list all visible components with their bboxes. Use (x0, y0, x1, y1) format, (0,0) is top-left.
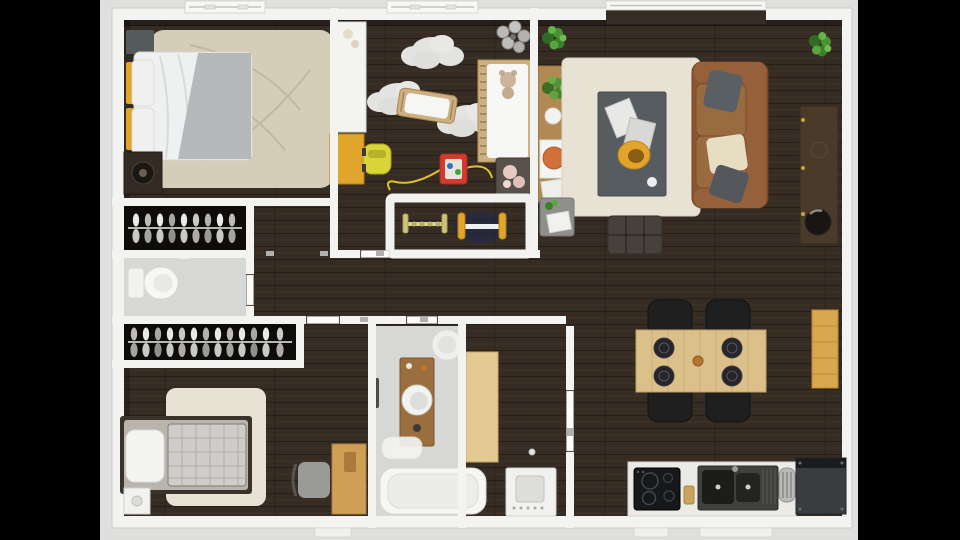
desk-items (344, 452, 356, 472)
wall-closet2-east (296, 316, 304, 368)
cooktop (634, 468, 680, 510)
window-nursery (387, 1, 478, 13)
wall-bench (812, 310, 838, 388)
sofa-backrest (744, 66, 766, 204)
double-sink (698, 466, 778, 510)
media-console (800, 106, 838, 244)
door-hardware-6 (567, 428, 573, 436)
screenshot-stage: 3D rendered top-down apartment floor pla… (0, 0, 960, 540)
vanity-accessory (422, 366, 427, 371)
door-hardware-5 (420, 317, 428, 322)
wc-door (247, 275, 254, 305)
plaid-blanket (168, 424, 246, 486)
wall-bedroom1-south (112, 198, 338, 206)
lamp-inner (438, 336, 456, 354)
toilet-seat (153, 274, 173, 292)
wall-bedroom2-east (368, 316, 376, 528)
wall-hall-south-left (112, 316, 306, 324)
door-hardware-4 (360, 317, 368, 322)
letterbox-right (858, 0, 960, 540)
wall-bathroom-east (458, 316, 466, 528)
bathtub (380, 468, 486, 514)
white-vase (545, 108, 561, 124)
wall-closet1-south (112, 250, 254, 258)
sink-bowl (410, 392, 428, 410)
wood-vanity (400, 358, 434, 446)
desk-chair (293, 462, 330, 498)
threshold-bathroom (315, 528, 351, 537)
crib-with-teddy (478, 60, 532, 162)
laundry-door (567, 391, 574, 451)
white-pillow-2 (132, 108, 154, 154)
wall-nursery-south-left (330, 250, 360, 258)
bath-mat (382, 437, 422, 459)
sink-faucet (413, 424, 421, 432)
window-kitchen (700, 528, 772, 537)
washing-machine (506, 468, 556, 516)
floor-plan-canvas: 3D rendered top-down apartment floor pla… (0, 0, 960, 540)
leather-sofa (692, 62, 768, 208)
wall-laundry-east-lower (566, 452, 574, 528)
bed2-pillow (126, 430, 164, 482)
decor-ball (647, 177, 657, 187)
nursery-door (361, 251, 389, 258)
wardrobe-decor-1 (343, 29, 353, 39)
threshold-entry (634, 528, 668, 537)
pepper-mill (693, 356, 703, 366)
coffee-table (598, 92, 666, 196)
wall-closet2-south (112, 360, 304, 368)
dish-rack (779, 468, 795, 502)
toilet-cistern (128, 268, 144, 298)
window-bay-floor (606, 10, 766, 24)
side-stool (540, 198, 574, 236)
toy-car (362, 144, 391, 174)
closet-2 (124, 324, 296, 360)
stool-papers (547, 211, 572, 233)
wardrobe-decor-2 (351, 40, 359, 48)
cutting-board (684, 486, 694, 504)
soap-dish (406, 363, 412, 369)
wall-laundry-east-upper (566, 326, 574, 390)
wall-hall-south-right (438, 316, 566, 324)
white-pillow-1 (132, 60, 154, 106)
kitchen-faucet (732, 466, 738, 472)
black-bowl (805, 209, 831, 235)
nightstand-knob (132, 496, 142, 506)
bedroom-1 (124, 30, 334, 194)
door-hardware-1 (266, 251, 274, 256)
door-hardware-3 (376, 251, 384, 256)
door-hardware-2 (320, 251, 328, 256)
wall-nursery-living (530, 8, 538, 258)
wall-bedroom1-nursery (330, 8, 338, 258)
window-bay-living (606, 1, 766, 10)
bedroom-2-door (307, 317, 339, 324)
closet-1 (124, 206, 246, 250)
wall-nursery-south-right (390, 250, 540, 258)
letterbox-left (0, 0, 100, 540)
water-valve (529, 449, 535, 455)
laundry-wood-counter (466, 352, 498, 462)
yellow-bowl-inner (628, 149, 644, 163)
window-bedroom-1 (185, 1, 265, 13)
dark-appliance (796, 458, 846, 514)
kitchen (628, 458, 846, 516)
wall-wc-east-upper (246, 198, 254, 274)
tufted-ottoman (608, 216, 662, 254)
speaker-cabinet (124, 152, 162, 194)
toy-dumbbell-blue (453, 211, 509, 243)
storage-basket-with-plush (496, 158, 532, 196)
